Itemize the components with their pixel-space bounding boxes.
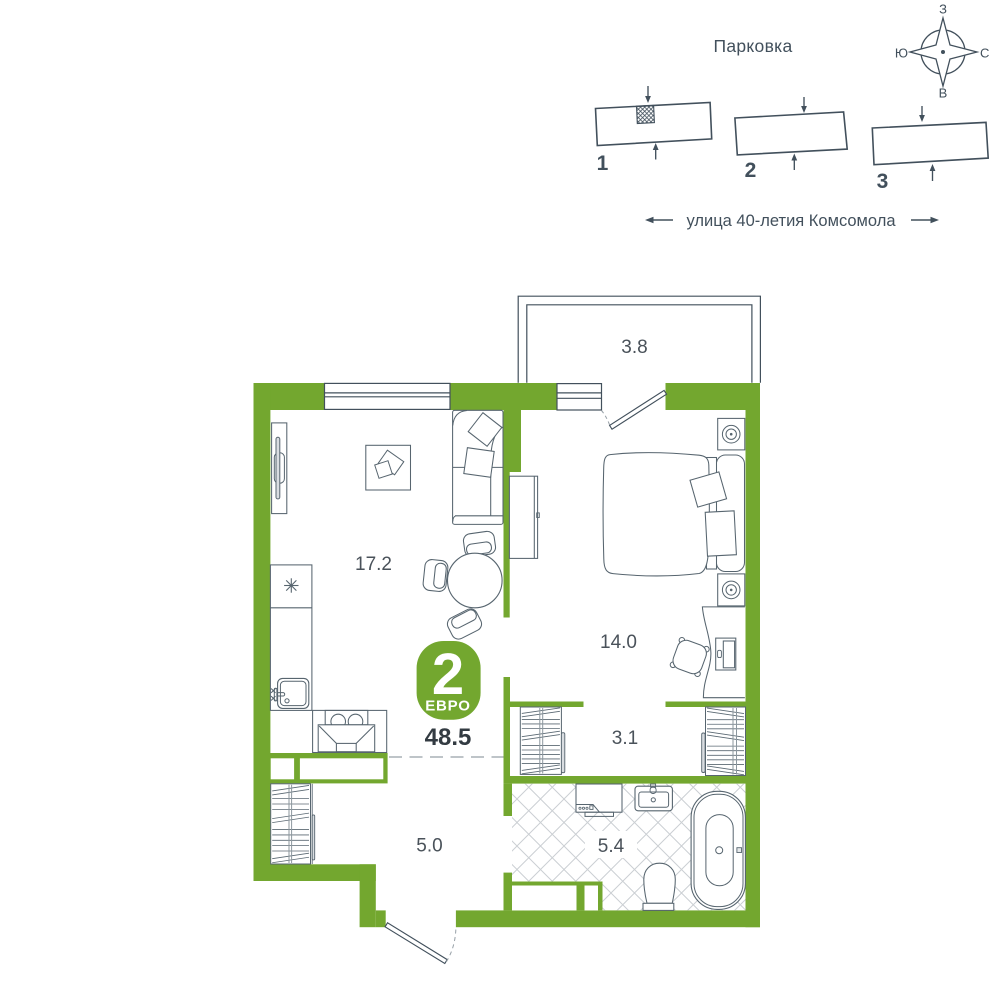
svg-text:Парковка: Парковка <box>713 36 792 56</box>
svg-text:3.8: 3.8 <box>621 337 647 358</box>
svg-text:48.5: 48.5 <box>425 724 472 751</box>
svg-text:С: С <box>980 45 989 60</box>
svg-text:5.0: 5.0 <box>416 836 442 857</box>
svg-text:17.2: 17.2 <box>355 554 392 575</box>
svg-text:З: З <box>939 2 947 17</box>
svg-text:5.4: 5.4 <box>598 836 625 857</box>
svg-text:ЕВРО: ЕВРО <box>425 698 471 715</box>
svg-text:Ю: Ю <box>895 45 908 60</box>
svg-text:2: 2 <box>745 159 757 182</box>
svg-text:1: 1 <box>597 152 609 175</box>
svg-text:3: 3 <box>877 170 889 193</box>
svg-text:14.0: 14.0 <box>600 632 637 653</box>
svg-text:В: В <box>939 86 948 101</box>
svg-text:3.1: 3.1 <box>612 728 638 749</box>
svg-text:улица 40-летия Комсомола: улица 40-летия Комсомола <box>686 212 896 230</box>
